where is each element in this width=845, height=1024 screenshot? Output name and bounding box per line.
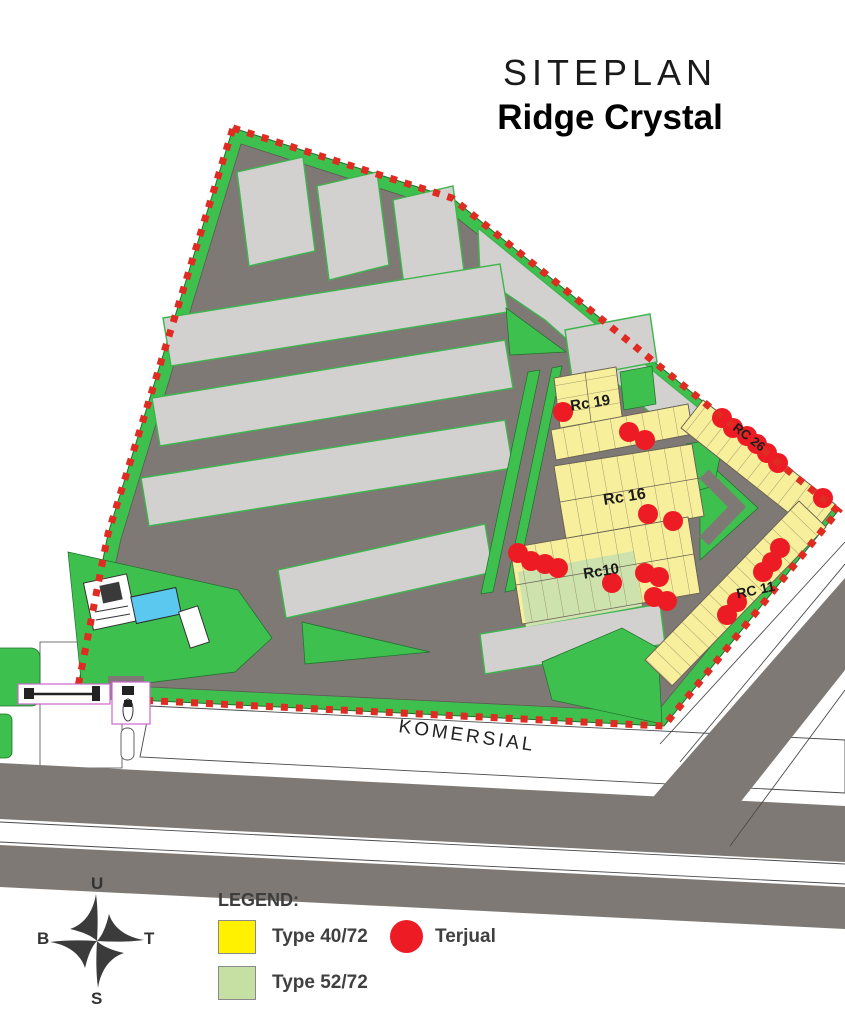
sold-dot [638,504,658,524]
legend-item-type4072: Type 40/72 [218,920,368,954]
compass-north-label: U [91,874,103,893]
legend-item-terjual: Terjual [390,920,496,953]
left-green-island-small [0,714,12,758]
siteplan-map: Rc 19 Rc 16 Rc10 RC 26 RC 11 KOMERSIAL U… [0,0,845,1024]
sold-dot [649,567,669,587]
legend-item-type5272: Type 52/72 [218,966,368,1000]
sold-dot [657,591,677,611]
legend-label: Type 52/72 [272,972,368,994]
sold-dot [635,430,655,450]
compass-south-label: S [91,989,102,1008]
gate-glyph [92,686,100,701]
type-40-72-swatch [218,920,256,954]
page-title: SITEPLAN [420,52,800,94]
compass-blade-east [97,914,144,942]
green-verge [620,366,656,410]
sold-dot [548,558,568,578]
compass-east-label: T [144,929,155,948]
road-island [121,728,134,760]
gate-glyph [124,700,132,707]
legend-label: Type 40/72 [272,926,368,948]
sold-dot [663,511,683,531]
compass-blade-west [50,940,97,968]
sold-dot-swatch [390,920,423,953]
compass-blade-south [96,941,124,988]
compass-rose: U T S B [37,874,155,1008]
page-subtitle: Ridge Crystal [420,98,800,138]
gate-glyph [24,688,34,699]
siteplan-page: Rc 19 Rc 16 Rc10 RC 26 RC 11 KOMERSIAL U… [0,0,845,1024]
gate-glyph [122,686,134,695]
legend-label: Terjual [435,926,496,948]
block-gray [237,157,315,266]
legend-heading: LEGEND: [218,890,538,911]
title-block: SITEPLAN Ridge Crystal [420,52,800,138]
compass-west-label: B [37,929,49,948]
sold-dot [717,605,737,625]
compass-blade-north [70,894,98,941]
legend: LEGEND: Type 40/72 Type 52/72 Terjual [218,890,538,911]
type-52-72-swatch [218,966,256,1000]
block-gray [317,172,389,280]
